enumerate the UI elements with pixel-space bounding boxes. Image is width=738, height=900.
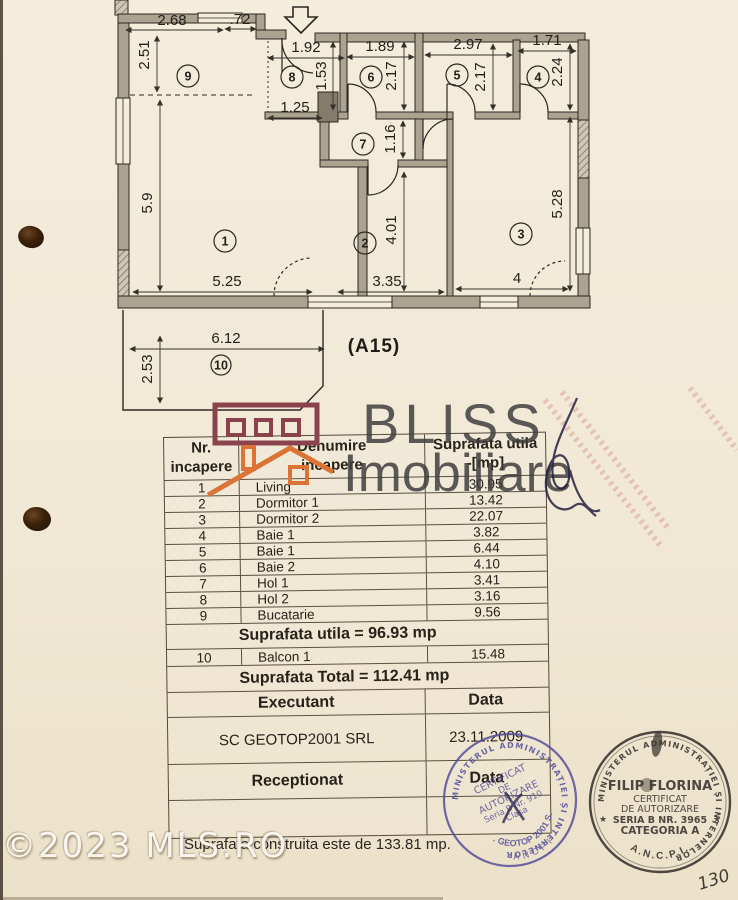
scanned-floorplan-document: 2.68 .72 2.51 1.92 1.89 2.97 1.71 1.53 2… <box>0 0 738 900</box>
dim-label: 6.12 <box>211 330 240 347</box>
svg-text:8: 8 <box>289 71 296 85</box>
dim-label: 2.53 <box>139 354 156 383</box>
punch-hole-bottom <box>21 505 52 533</box>
dim-label: 1.25 <box>280 99 309 116</box>
svg-text:2: 2 <box>362 237 369 251</box>
dim-label: 5.25 <box>212 273 241 290</box>
header-suprafata-line2: -[mp] <box>467 454 505 473</box>
dim-label: 1.89 <box>365 38 394 55</box>
dim-label: 2.17 <box>383 61 400 90</box>
apartment-label: (A15) <box>348 336 401 357</box>
dim-label: 1.92 <box>291 39 320 56</box>
svg-text:CATEGORIA A: CATEGORIA A <box>621 825 701 837</box>
executant-company: SC GEOTOP2001 SRL <box>168 714 427 764</box>
executant-label: Executant <box>168 689 426 717</box>
room-9-marker: 9 <box>177 65 199 87</box>
dimension-labels: 2.68 .72 2.51 1.92 1.89 2.97 1.71 1.53 2… <box>136 11 566 384</box>
room-1-marker: 1 <box>214 230 236 252</box>
receptionat-label: Receptionat <box>169 761 427 800</box>
svg-text:FILIP FLORINA: FILIP FLORINA <box>608 779 712 794</box>
mls-watermark: ©2023 MLS.RO <box>2 826 288 866</box>
svg-text:5: 5 <box>454 69 461 83</box>
svg-text:3: 3 <box>518 228 525 242</box>
room-6-marker: 6 <box>360 66 382 88</box>
agency-house-logo-icon <box>130 395 360 510</box>
svg-text:7: 7 <box>360 138 367 152</box>
dim-label: 4 <box>513 270 521 287</box>
dim-label: 3.35 <box>372 273 401 290</box>
svg-text:4: 4 <box>535 71 542 85</box>
stamp-geotop: MINISTERUL ADMINISTRAȚIEI ȘI INTERNELOR … <box>430 698 576 893</box>
room-3-marker: 3 <box>510 223 532 245</box>
svg-text:10: 10 <box>214 359 228 373</box>
svg-text:1: 1 <box>222 235 229 249</box>
dim-label: 1.71 <box>532 32 561 49</box>
dim-label: 5.28 <box>549 189 566 218</box>
dim-label: 5.9 <box>139 193 156 214</box>
dim-label: 2.17 <box>472 62 489 91</box>
dim-label: 4.01 <box>383 215 400 244</box>
scan-edge-left <box>0 0 3 900</box>
room-4-marker: 4 <box>527 66 549 88</box>
svg-text:DE AUTORIZARE: DE AUTORIZARE <box>621 804 699 815</box>
star-icon: ★ <box>713 815 721 825</box>
ink-smudge <box>640 778 654 792</box>
dim-label: 1.53 <box>313 61 330 90</box>
entrance-arrow-icon <box>285 7 317 33</box>
dim-label: 1.16 <box>382 124 399 153</box>
dim-label: 2.68 <box>157 12 186 29</box>
dim-label: .72 <box>230 11 251 28</box>
shaft <box>318 92 338 122</box>
svg-text:9: 9 <box>185 70 192 84</box>
dim-label: 2.97 <box>453 36 482 53</box>
dim-label: 2.51 <box>136 40 153 69</box>
star-icon: ★ <box>599 815 607 825</box>
stamps: MINISTERUL ADMINISTRAȚIEI ȘI INTERNELOR … <box>430 698 738 900</box>
room-7-marker: 7 <box>352 133 374 155</box>
room-5-marker: 5 <box>446 64 468 86</box>
svg-text:6: 6 <box>368 71 375 85</box>
dim-label: 2.24 <box>549 57 566 86</box>
total-label: Suprafata Total = 112.41 mp <box>167 662 548 692</box>
ink-smudge <box>650 730 664 757</box>
stamp-filip-florina: MINISTERUL ADMINISTRAȚIEI ȘI INTERNELOR … <box>590 730 730 872</box>
header-suprafata-line1: Suprafata utila <box>433 435 537 455</box>
room-8-marker: 8 <box>281 66 303 88</box>
room-10-marker: 10 <box>211 355 231 375</box>
floor-plan: 2.68 .72 2.51 1.92 1.89 2.97 1.71 1.53 2… <box>0 0 738 432</box>
